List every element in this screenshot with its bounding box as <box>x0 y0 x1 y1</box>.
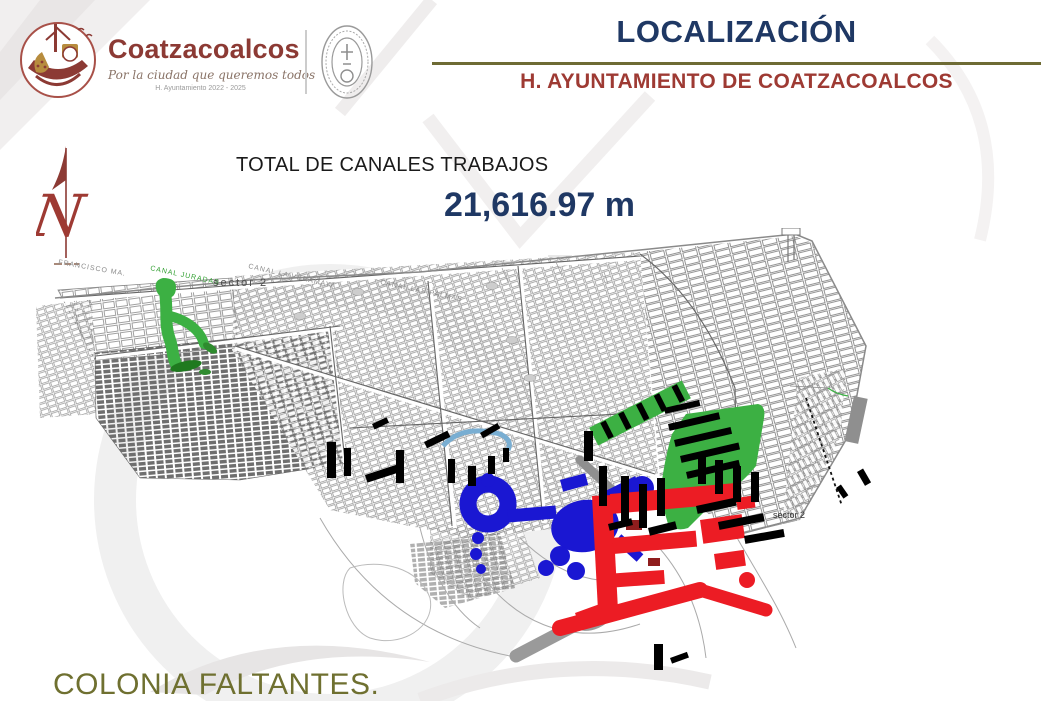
title-underline <box>432 62 1041 65</box>
city-map: FRANCISCO MA. CANAL JURADAS sector 2 CAN… <box>0 228 1045 690</box>
header-divider <box>305 30 307 94</box>
footer-note: COLONIA FALTANTES. <box>53 668 379 702</box>
total-canals-value: 21,616.97 m <box>444 186 635 225</box>
city-logo-icon <box>12 10 104 106</box>
page-title: LOCALIZACIÓN <box>616 14 856 49</box>
brand-administration: H. Ayuntamiento 2022 - 2025 <box>108 85 293 92</box>
map-label-sector2-right: sector 2 <box>773 510 805 520</box>
map-label-francisco: FRANCISCO MA. <box>58 259 127 278</box>
page-subtitle: H. AYUNTAMIENTO DE COATZACOALCOS <box>430 70 1043 94</box>
total-canals-label: TOTAL DE CANALES TRABAJOS <box>236 154 548 177</box>
map-label-sector2-left: sector 2 <box>213 277 268 289</box>
brand-name: Coatzacoalcos <box>108 34 308 65</box>
municipal-seal-icon <box>318 24 376 100</box>
brand-tagline: Por la ciudad que queremos todos <box>108 68 308 82</box>
